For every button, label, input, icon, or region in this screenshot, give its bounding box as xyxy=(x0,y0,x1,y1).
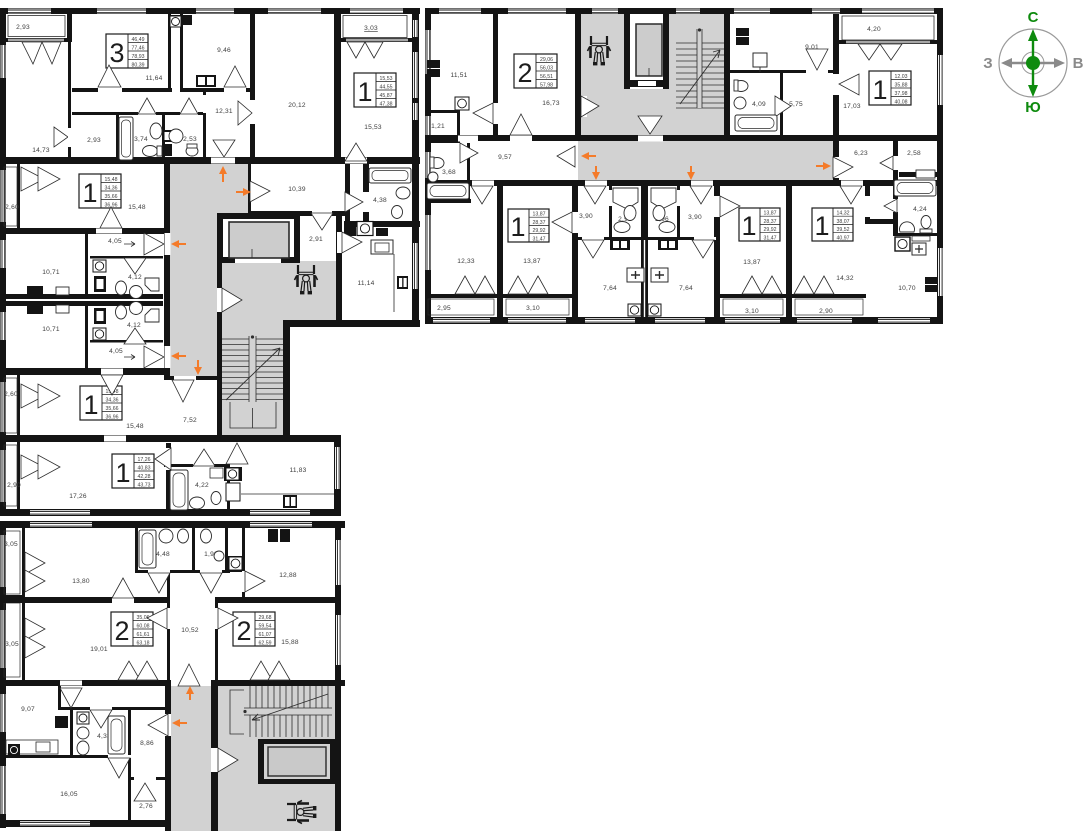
svg-text:78,93: 78,93 xyxy=(132,54,145,60)
svg-text:1: 1 xyxy=(872,75,887,105)
svg-text:4,22: 4,22 xyxy=(195,482,209,489)
svg-text:Ю: Ю xyxy=(1025,99,1040,116)
svg-text:11,14: 11,14 xyxy=(357,280,374,287)
svg-text:3,10: 3,10 xyxy=(745,308,759,315)
svg-text:45,87: 45,87 xyxy=(380,93,393,99)
svg-text:2,60: 2,60 xyxy=(5,204,19,211)
svg-text:15,88: 15,88 xyxy=(281,639,299,646)
svg-text:13,87: 13,87 xyxy=(533,212,546,218)
svg-text:77,46: 77,46 xyxy=(132,46,145,52)
svg-text:2,93: 2,93 xyxy=(87,137,101,144)
svg-text:61,07: 61,07 xyxy=(259,632,272,638)
svg-text:3: 3 xyxy=(109,38,124,68)
svg-text:2,91: 2,91 xyxy=(309,236,323,243)
svg-text:14,32: 14,32 xyxy=(836,275,854,282)
svg-text:31,47: 31,47 xyxy=(533,237,546,243)
svg-text:40,08: 40,08 xyxy=(895,100,908,106)
svg-text:12,31: 12,31 xyxy=(215,108,233,115)
svg-text:15,53: 15,53 xyxy=(364,124,382,131)
svg-text:15,53: 15,53 xyxy=(380,76,393,82)
svg-text:44,55: 44,55 xyxy=(380,85,393,91)
svg-text:3,90: 3,90 xyxy=(688,214,702,221)
svg-text:14,73: 14,73 xyxy=(32,147,50,154)
svg-text:3,05: 3,05 xyxy=(5,641,19,648)
svg-text:2: 2 xyxy=(236,616,251,646)
svg-text:10,70: 10,70 xyxy=(898,285,916,292)
svg-text:2,76: 2,76 xyxy=(139,803,153,810)
svg-text:1,21: 1,21 xyxy=(431,123,445,130)
svg-text:17,26: 17,26 xyxy=(69,493,87,500)
svg-text:10,52: 10,52 xyxy=(181,627,199,634)
svg-text:35,66: 35,66 xyxy=(105,194,118,200)
svg-text:11,64: 11,64 xyxy=(145,75,162,82)
svg-text:С: С xyxy=(1028,9,1039,26)
svg-text:4,05: 4,05 xyxy=(109,348,123,355)
svg-text:59,54: 59,54 xyxy=(259,624,272,630)
svg-text:16,73: 16,73 xyxy=(542,100,560,107)
svg-text:60,08: 60,08 xyxy=(137,624,150,630)
svg-text:10,71: 10,71 xyxy=(42,326,60,333)
svg-text:46,49: 46,49 xyxy=(132,37,145,43)
svg-text:2,58: 2,58 xyxy=(907,150,921,157)
svg-text:42,28: 42,28 xyxy=(138,474,151,480)
svg-text:20,12: 20,12 xyxy=(288,102,306,109)
svg-text:15,48: 15,48 xyxy=(126,423,144,430)
svg-text:61,61: 61,61 xyxy=(137,632,150,638)
svg-text:4,24: 4,24 xyxy=(913,206,927,213)
svg-text:47,38: 47,38 xyxy=(380,102,393,108)
svg-text:29,92: 29,92 xyxy=(533,228,546,234)
svg-text:З: З xyxy=(983,55,992,72)
svg-text:1: 1 xyxy=(83,390,98,420)
svg-text:13,87: 13,87 xyxy=(743,259,761,266)
svg-text:31,47: 31,47 xyxy=(764,236,777,242)
svg-text:4,48: 4,48 xyxy=(156,551,170,558)
svg-text:1: 1 xyxy=(510,212,525,242)
svg-text:36,96: 36,96 xyxy=(106,415,119,421)
svg-text:4,12: 4,12 xyxy=(127,322,141,329)
svg-text:7,52: 7,52 xyxy=(183,417,197,424)
svg-text:28,37: 28,37 xyxy=(764,219,777,225)
svg-text:4,12: 4,12 xyxy=(128,274,142,281)
svg-text:3,90: 3,90 xyxy=(579,213,593,220)
svg-text:4,05: 4,05 xyxy=(108,238,122,245)
svg-text:5,75: 5,75 xyxy=(789,101,803,108)
svg-text:19,01: 19,01 xyxy=(90,646,108,653)
svg-text:29,68: 29,68 xyxy=(259,615,272,621)
svg-text:34,36: 34,36 xyxy=(105,186,118,192)
svg-text:12,03: 12,03 xyxy=(895,74,908,80)
svg-text:15,48: 15,48 xyxy=(128,204,146,211)
svg-text:14,32: 14,32 xyxy=(837,211,850,217)
svg-text:1: 1 xyxy=(357,77,372,107)
svg-text:17,03: 17,03 xyxy=(843,103,861,110)
svg-text:8,86: 8,86 xyxy=(140,740,154,747)
svg-text:4,20: 4,20 xyxy=(867,26,881,33)
svg-text:35,88: 35,88 xyxy=(895,83,908,89)
svg-text:13,80: 13,80 xyxy=(72,578,90,585)
svg-text:2,90: 2,90 xyxy=(7,482,21,489)
svg-text:3,03: 3,03 xyxy=(364,25,378,32)
svg-text:63,18: 63,18 xyxy=(137,641,150,647)
svg-text:10,39: 10,39 xyxy=(288,186,306,193)
svg-text:12,33: 12,33 xyxy=(457,258,475,265)
svg-text:62,59: 62,59 xyxy=(259,641,272,647)
svg-text:15,48: 15,48 xyxy=(105,177,118,183)
svg-text:43,73: 43,73 xyxy=(138,483,151,489)
svg-text:16,05: 16,05 xyxy=(60,791,78,798)
svg-text:38,07: 38,07 xyxy=(837,219,850,225)
svg-text:3,05: 3,05 xyxy=(4,541,18,548)
svg-text:17,26: 17,26 xyxy=(138,457,151,463)
svg-text:34,36: 34,36 xyxy=(106,398,119,404)
svg-text:9,57: 9,57 xyxy=(498,154,512,161)
svg-text:80,39: 80,39 xyxy=(132,63,145,69)
svg-text:7,64: 7,64 xyxy=(603,285,617,292)
svg-text:3,10: 3,10 xyxy=(526,305,540,312)
svg-text:3,74: 3,74 xyxy=(134,136,148,143)
svg-text:9,07: 9,07 xyxy=(21,706,35,713)
svg-text:13,87: 13,87 xyxy=(764,211,777,217)
svg-text:35,66: 35,66 xyxy=(106,406,119,412)
svg-text:2,95: 2,95 xyxy=(437,305,451,312)
svg-text:40,97: 40,97 xyxy=(837,236,850,242)
svg-text:2,53: 2,53 xyxy=(183,136,197,143)
svg-text:11,83: 11,83 xyxy=(289,467,306,474)
svg-text:57,98: 57,98 xyxy=(540,83,553,89)
svg-text:29,06: 29,06 xyxy=(540,57,553,63)
svg-text:1: 1 xyxy=(814,211,829,241)
svg-text:2,90: 2,90 xyxy=(819,308,833,315)
svg-text:1: 1 xyxy=(115,458,130,488)
svg-text:56,51: 56,51 xyxy=(540,74,553,80)
svg-text:29,92: 29,92 xyxy=(764,227,777,233)
svg-text:9,46: 9,46 xyxy=(217,47,231,54)
svg-text:13,87: 13,87 xyxy=(523,258,541,265)
svg-text:7,64: 7,64 xyxy=(679,285,693,292)
svg-text:4,09: 4,09 xyxy=(752,101,766,108)
svg-text:3,68: 3,68 xyxy=(442,169,456,176)
svg-text:2: 2 xyxy=(517,58,532,88)
svg-text:4,38: 4,38 xyxy=(373,197,387,204)
svg-text:2: 2 xyxy=(114,616,129,646)
svg-text:1: 1 xyxy=(82,178,97,208)
svg-text:1: 1 xyxy=(741,211,756,241)
svg-text:40,83: 40,83 xyxy=(138,466,151,472)
svg-text:2,93: 2,93 xyxy=(16,24,30,31)
svg-text:56,03: 56,03 xyxy=(540,66,553,72)
svg-text:2,60: 2,60 xyxy=(4,391,18,398)
svg-text:28,37: 28,37 xyxy=(533,220,546,226)
svg-text:37,98: 37,98 xyxy=(895,91,908,97)
svg-text:11,51: 11,51 xyxy=(450,72,467,79)
svg-text:6,23: 6,23 xyxy=(854,150,868,157)
svg-text:В: В xyxy=(1073,55,1084,72)
svg-text:12,88: 12,88 xyxy=(279,572,297,579)
svg-text:10,71: 10,71 xyxy=(42,269,60,276)
svg-text:39,52: 39,52 xyxy=(837,227,850,233)
